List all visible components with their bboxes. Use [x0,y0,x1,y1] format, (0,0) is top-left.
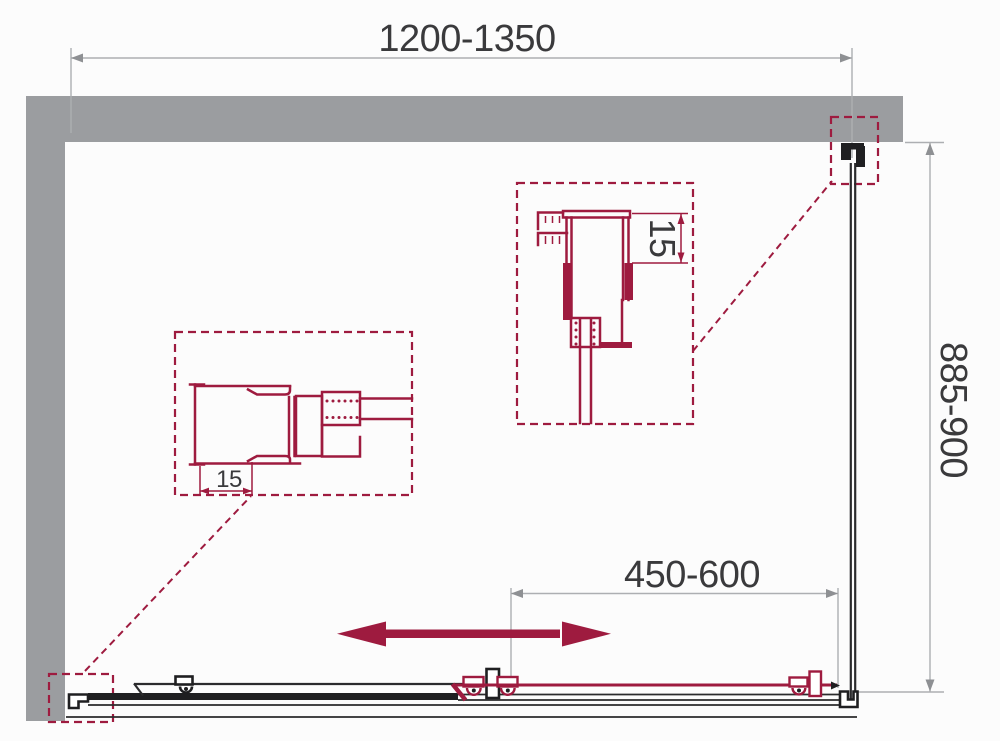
shower-enclosure-diagram: 1200-1350 885-900 450-600 15 15 [0,0,1000,741]
detail-top-dim-label: 15 [644,208,680,268]
bottom-track-assembly [66,669,858,717]
roller-right [790,672,822,697]
side-glass-panel [851,163,855,699]
dimension-door-width [511,588,838,688]
leader-line-top-detail [693,181,832,351]
wall-left [26,96,65,721]
wall [26,96,903,721]
door-knob-left [176,677,193,693]
detail-left-dim-label: 15 [204,468,254,492]
dim-door-width-label: 450-600 [617,556,767,594]
leader-line-left-detail [85,496,251,671]
wall-bracket-top [841,143,865,167]
dim-side-depth-label: 885-900 [934,335,972,485]
wall-bracket-bottom-left [69,695,88,709]
wall-top [26,96,903,142]
diagram-canvas [0,0,1000,741]
slide-direction-arrow [337,622,611,647]
fixed-panel-profile [88,693,458,700]
corner-bracket-bottom-right [840,692,858,708]
dim-overall-width-label: 1200-1350 [376,20,558,58]
